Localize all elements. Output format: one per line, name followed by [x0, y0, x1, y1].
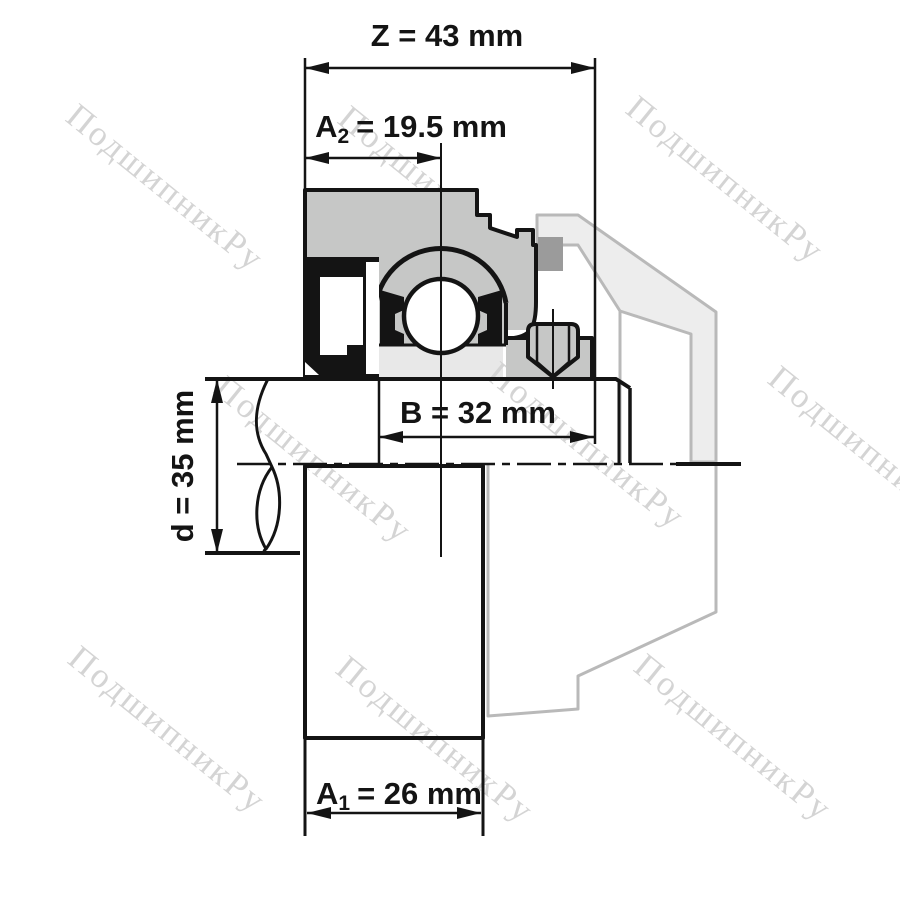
dim-d: d = 35 mm [165, 379, 223, 553]
seal-inner-cavity [320, 277, 363, 355]
dim-B-arrow-left [379, 431, 403, 443]
watermark-text: ПодшипникРу [619, 88, 832, 271]
dim-Z-arrow-left [305, 62, 329, 74]
watermark-text: ПодшипникРу [480, 354, 693, 537]
watermark-text: ПодшипникРу [59, 96, 272, 279]
seal-slot [366, 262, 379, 374]
dim-A1: A1= 26 mm [307, 776, 482, 819]
dim-Z-arrow-right [571, 62, 595, 74]
dim-d-label: d = 35 mm [165, 390, 200, 543]
dim-A2-arrow-left [305, 152, 329, 164]
shaft-break-loop [257, 467, 272, 549]
bearing-dimension-drawing: Z = 43 mm A2= 19.5 mm B = 32 mm d = 35 m… [0, 0, 900, 900]
watermark-text: ПодшипникРу [627, 646, 840, 829]
watermark-text: ПодшипникРу [61, 638, 274, 821]
dim-d-arrow-bottom [211, 529, 223, 553]
watermark-text: ПодшипникРу [761, 358, 900, 541]
ghost-set-screw [538, 237, 563, 271]
dim-Z-label: Z = 43 mm [371, 18, 524, 53]
dim-Z: Z = 43 mm [305, 18, 595, 74]
